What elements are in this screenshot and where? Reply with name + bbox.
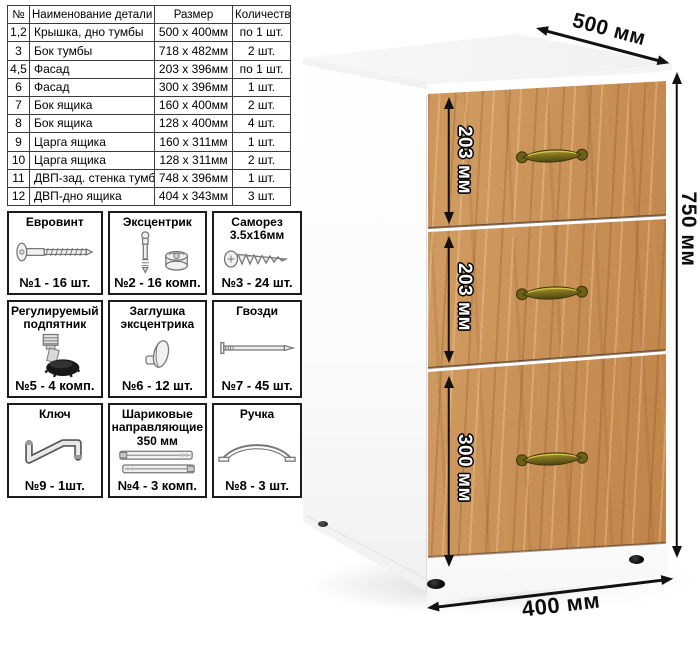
table-row: 4,5Фасад203 x 396ммпо 1 шт. <box>8 60 291 78</box>
cell-number: 1,2 <box>8 24 30 42</box>
cabinet-foot <box>318 521 328 527</box>
cell-size: 160 x 311мм <box>155 133 233 151</box>
cell-number: 7 <box>8 96 30 114</box>
hardware-count: №9 - 1шт. <box>25 478 85 493</box>
hardware-count: №7 - 45 шт. <box>222 378 293 393</box>
cell-part-name: Царга ящика <box>30 133 155 151</box>
adjustable-foot-icon <box>11 332 99 378</box>
cell-quantity: 2 шт. <box>233 151 291 169</box>
cell-number: 12 <box>8 187 30 205</box>
table-row: 9Царга ящика160 x 311мм1 шт. <box>8 133 291 151</box>
drawer1-height-label: 203 мм <box>453 126 475 194</box>
cell-number: 4,5 <box>8 60 30 78</box>
hardware-cell-cap: Заглушка эксцентрика №6 - 12 шт. <box>108 300 207 398</box>
cell-size: 500 x 400мм <box>155 24 233 42</box>
cell-quantity: 3 шт. <box>233 187 291 205</box>
height-arrow <box>670 72 683 558</box>
cell-size: 203 x 396мм <box>155 60 233 78</box>
drawer-handle-2 <box>515 282 590 303</box>
cell-number: 11 <box>8 169 30 187</box>
cell-part-name: Фасад <box>30 78 155 96</box>
drawer3-height-label: 300 мм <box>453 434 475 502</box>
cell-number: 8 <box>8 115 30 133</box>
cell-part-name: Бок тумбы <box>30 42 155 60</box>
table-header-row: № Наименование детали Размер Количество <box>8 6 291 24</box>
table-row: 8Бок ящика128 x 400мм4 шт. <box>8 115 291 133</box>
cabinet-foot <box>427 579 445 589</box>
hardware-name: Регулируемый подпятник <box>11 305 99 332</box>
euro-screw-icon <box>11 229 99 274</box>
assembly-instruction-sheet: № Наименование детали Размер Количество … <box>0 0 700 648</box>
cell-quantity: 1 шт. <box>233 78 291 96</box>
hardware-count: №1 - 16 шт. <box>19 275 90 290</box>
cell-quantity: 4 шт. <box>233 115 291 133</box>
cell-size: 160 x 400мм <box>155 96 233 114</box>
hardware-name: Шариковые направляющие 350 мм <box>112 408 203 448</box>
ball-bearing-slides-icon <box>112 448 203 478</box>
table-row: 1,2Крышка, дно тумбы500 x 400ммпо 1 шт. <box>8 24 291 42</box>
drawer2-height-label: 203 мм <box>453 263 475 331</box>
col-quantity: Количество <box>233 6 291 24</box>
cell-size: 300 x 396мм <box>155 78 233 96</box>
hardware-cell-eurovint: Евровинт №1 - 16 шт. <box>7 211 103 295</box>
cell-quantity: 1 шт. <box>233 133 291 151</box>
parts-table-body: 1,2Крышка, дно тумбы500 x 400ммпо 1 шт. … <box>8 24 291 206</box>
table-row: 6Фасад300 x 396мм1 шт. <box>8 78 291 96</box>
cell-part-name: Царга ящика <box>30 151 155 169</box>
hardware-cell-eccentric: Эксцентрик №2 - 16 комп. <box>108 211 207 295</box>
hardware-grid: Евровинт №1 - 16 шт. Эксцентрик <box>7 211 285 498</box>
parts-table: № Наименование детали Размер Количество … <box>7 5 291 206</box>
hardware-cell-nails: Гвозди №7 - 45 шт. <box>212 300 302 398</box>
hardware-count: №3 - 24 шт. <box>222 275 293 290</box>
table-row: 10Царга ящика128 x 311мм2 шт. <box>8 151 291 169</box>
hardware-name: Гвозди <box>236 305 278 318</box>
hardware-name: Ключ <box>39 408 71 421</box>
nail-icon <box>216 318 298 377</box>
cell-part-name: ДВП-дно ящика <box>30 187 155 205</box>
col-part-name: Наименование детали <box>30 6 155 24</box>
col-size: Размер <box>155 6 233 24</box>
cell-size: 128 x 311мм <box>155 151 233 169</box>
table-row: 11ДВП-зад. стенка тумбы748 x 396мм1 шт. <box>8 169 291 187</box>
table-row: 3Бок тумбы718 x 482мм2 шт. <box>8 42 291 60</box>
cell-number: 10 <box>8 151 30 169</box>
hardware-cell-foot: Регулируемый подпятник №5 - 4 комп. <box>7 300 103 398</box>
col-number: № <box>8 6 30 24</box>
hardware-count: №8 - 3 шт. <box>225 478 289 493</box>
hardware-count: №5 - 4 комп. <box>15 378 94 393</box>
cell-number: 9 <box>8 133 30 151</box>
cell-number: 6 <box>8 78 30 96</box>
cell-size: 128 x 400мм <box>155 115 233 133</box>
hardware-cell-key: Ключ №9 - 1шт. <box>7 403 103 498</box>
cell-quantity: 2 шт. <box>233 96 291 114</box>
cell-number: 3 <box>8 42 30 60</box>
cell-size: 748 x 396мм <box>155 169 233 187</box>
cell-size: 404 x 343мм <box>155 187 233 205</box>
hardware-name: Эксцентрик <box>123 216 192 229</box>
cell-quantity: 1 шт. <box>233 169 291 187</box>
cell-size: 718 x 482мм <box>155 42 233 60</box>
hardware-count: №2 - 16 комп. <box>114 275 201 290</box>
table-row: 7Бок ящика160 x 400мм2 шт. <box>8 96 291 114</box>
cell-part-name: Крышка, дно тумбы <box>30 24 155 42</box>
hardware-name: Евровинт <box>26 216 84 229</box>
side-front-edge-line <box>426 95 427 593</box>
self-tapping-screw-icon <box>216 243 298 275</box>
hardware-name: Ручка <box>240 408 274 421</box>
cell-part-name: Бок ящика <box>30 96 155 114</box>
cabinet-foot <box>629 555 644 564</box>
cell-part-name: ДВП-зад. стенка тумбы <box>30 169 155 187</box>
cell-part-name: Бок ящика <box>30 115 155 133</box>
hardware-count: №6 - 12 шт. <box>122 378 193 393</box>
hex-key-icon <box>11 421 99 478</box>
hardware-cell-slides: Шариковые направляющие 350 мм №4 - 3 ком… <box>108 403 207 498</box>
eccentric-cam-icon <box>112 229 203 274</box>
drawer-handle-1 <box>515 145 590 166</box>
height-label: 750 мм <box>676 192 700 267</box>
hardware-name: Заглушка эксцентрика <box>112 305 203 332</box>
table-row: 12ДВП-дно ящика404 x 343мм3 шт. <box>8 187 291 205</box>
parts-table-header: № Наименование детали Размер Количество <box>8 6 291 24</box>
hardware-count: №4 - 3 комп. <box>118 478 197 493</box>
cell-quantity: 2 шт. <box>233 42 291 60</box>
drawer-handle-3 <box>515 448 590 469</box>
cam-cap-icon <box>112 332 203 378</box>
cell-part-name: Фасад <box>30 60 155 78</box>
hardware-cell-samorez: Саморез 3.5х16мм №3 - 24 шт. <box>212 211 302 295</box>
cell-quantity: по 1 шт. <box>233 24 291 42</box>
handle-icon <box>216 421 298 478</box>
cell-quantity: по 1 шт. <box>233 60 291 78</box>
hardware-name: Саморез 3.5х16мм <box>216 216 298 243</box>
hardware-cell-handle: Ручка №8 - 3 шт. <box>212 403 302 498</box>
